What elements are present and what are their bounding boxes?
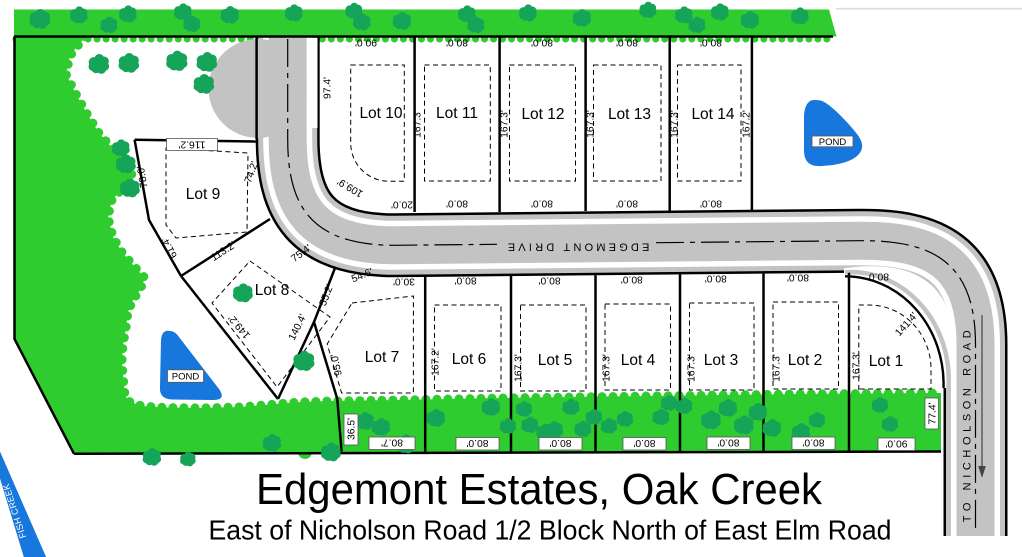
svg-text:80.0': 80.0' [621,273,643,284]
svg-text:Lot 14: Lot 14 [691,106,734,123]
svg-text:Lot 11: Lot 11 [436,105,478,122]
svg-text:80.0': 80.0' [867,270,889,281]
svg-text:80.0': 80.0' [787,271,809,282]
svg-text:80.0': 80.0' [549,437,571,448]
svg-text:POND: POND [172,372,200,383]
svg-text:20.0': 20.0' [391,198,413,209]
svg-text:TO NICHOLSON ROAD: TO NICHOLSON ROAD [962,326,974,523]
svg-text:80.0': 80.0' [700,197,722,208]
svg-text:167.3': 167.3' [687,354,698,382]
svg-text:Lot 10: Lot 10 [359,105,402,122]
svg-text:80.0': 80.0' [455,274,477,285]
svg-text:167.3': 167.3' [586,110,597,138]
svg-text:80.0': 80.0' [802,437,824,448]
svg-text:80.0': 80.0' [539,274,561,285]
svg-text:80.0': 80.0' [446,197,468,208]
svg-text:80.0': 80.0' [446,36,468,47]
svg-text:167.3': 167.3' [852,352,863,380]
svg-text:167.3': 167.3' [602,354,613,382]
svg-text:30.0': 30.0' [393,275,415,286]
svg-text:East of Nicholson Road 1/2 Blo: East of Nicholson Road 1/2 Block North o… [209,515,892,546]
svg-text:77.4': 77.4' [927,402,938,424]
svg-text:Lot 1: Lot 1 [869,353,903,370]
svg-text:Lot 13: Lot 13 [608,106,651,123]
svg-text:EDGEMONT DRIVE: EDGEMONT DRIVE [505,241,650,253]
svg-text:80.0': 80.0' [616,197,638,208]
svg-text:Lot 9: Lot 9 [186,186,220,203]
svg-text:Lot 5: Lot 5 [538,352,572,369]
svg-text:80.0': 80.0' [531,36,553,47]
svg-text:Lot 6: Lot 6 [452,351,486,368]
svg-text:Lot 7: Lot 7 [365,349,399,366]
svg-text:116.2': 116.2' [178,138,205,149]
svg-text:80.0': 80.0' [616,36,638,47]
svg-text:90.0': 90.0' [355,36,377,47]
svg-text:Lot 12: Lot 12 [521,106,564,123]
svg-text:Lot 8: Lot 8 [255,282,289,299]
svg-text:80.0': 80.0' [717,437,739,448]
svg-text:167.2': 167.2' [742,110,753,138]
svg-text:90.0': 90.0' [885,438,907,449]
svg-text:80.0': 80.0' [633,437,655,448]
svg-text:80.0': 80.0' [705,272,727,283]
svg-text:167.3': 167.3' [670,110,681,138]
svg-text:Lot 3: Lot 3 [704,352,738,369]
svg-text:80.0': 80.0' [700,36,722,47]
svg-text:167.3': 167.3' [500,110,511,138]
svg-text:Lot 2: Lot 2 [788,352,822,369]
svg-text:Edgemont Estates, Oak Creek: Edgemont Estates, Oak Creek [256,466,822,514]
svg-text:36.5': 36.5' [347,418,358,440]
svg-text:Lot 4: Lot 4 [621,352,656,369]
svg-text:167.2': 167.2' [431,348,442,376]
svg-text:POND: POND [819,137,847,148]
svg-text:167.3': 167.3' [413,110,424,138]
svg-text:97.4': 97.4' [323,77,334,99]
svg-text:80.0': 80.0' [531,197,553,208]
svg-text:167.3': 167.3' [514,354,525,382]
svg-text:80.0': 80.0' [466,437,488,448]
svg-text:80.7': 80.7' [381,437,403,448]
svg-text:167.3': 167.3' [772,354,783,382]
